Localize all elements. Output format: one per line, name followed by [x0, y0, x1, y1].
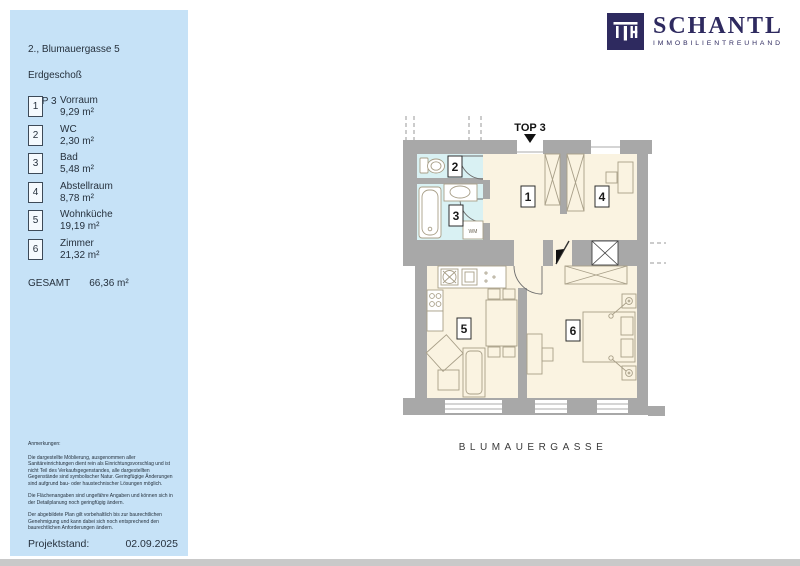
plan-label-1: 1 [525, 190, 532, 204]
wall-west-lower [415, 266, 427, 398]
room-list-item: 5 Wohnküche19,19 m² [28, 209, 178, 233]
room-name: Vorraum [60, 95, 178, 107]
plan-label-2: 2 [452, 160, 459, 174]
notes-title: Anmerkungen: [28, 441, 180, 448]
room-list-item: 3 Bad5,48 m² [28, 152, 178, 176]
address-line-1: 2., Blumauergasse 5 [28, 43, 120, 56]
logo-name: SCHANTL [653, 14, 783, 38]
room-number-box: 1 [28, 96, 43, 117]
plan-label-5: 5 [461, 322, 468, 336]
project-status-row: Projektstand: 02.09.2025 [28, 538, 178, 550]
wall-south-east-step [648, 406, 665, 416]
window-south-1 [445, 400, 502, 413]
room-name: Zimmer [60, 238, 178, 250]
ith-monogram-icon [607, 13, 644, 50]
bottom-edge-strip [0, 559, 800, 566]
info-panel: 2., Blumauergasse 5 Erdgeschoß TOP 3 1 V… [10, 10, 188, 556]
room-area: 2,30 m² [60, 136, 178, 148]
kitchen-cabinet [427, 311, 443, 331]
sink-icon [450, 186, 470, 198]
room-name: WC [60, 124, 178, 136]
room-list-item: 1 Vorraum9,29 m² [28, 95, 178, 119]
wall-east [637, 140, 648, 415]
room-name: Wohnküche [60, 209, 178, 221]
room-area: 21,32 m² [60, 250, 178, 262]
room-name: Abstellraum [60, 181, 178, 193]
room-area: 19,19 m² [60, 221, 178, 233]
washing-machine-label: WM [469, 229, 478, 235]
room-list-item: 2 WC2,30 m² [28, 124, 178, 148]
room-number-box: 4 [28, 182, 43, 203]
ith-monogram-svg [607, 13, 644, 50]
notes-block: Anmerkungen: Die dargestellte Möblierung… [28, 441, 180, 538]
wall-wohnkueche-zimmer [518, 288, 527, 398]
room-area: 9,29 m² [60, 107, 178, 119]
room-number-box: 5 [28, 210, 43, 231]
note-paragraph: Die dargestellte Möblierung, ausgenommen… [28, 455, 180, 488]
windows-south [445, 400, 628, 413]
total-value: 66,36 m² [89, 278, 128, 289]
floor-plan: WM [395, 110, 695, 470]
wall-west-upper [403, 140, 417, 242]
note-paragraph: Der abgebildete Plan gilt vorbehaltlich … [28, 512, 180, 532]
room-area: 8,78 m² [60, 193, 178, 205]
project-status-label: Projektstand: [28, 538, 89, 550]
room-area: 5,48 m² [60, 164, 178, 176]
shaft [592, 241, 618, 265]
plan-label-6: 6 [570, 324, 577, 338]
note-paragraph: Die Flächenangaben sind ungefähre Angabe… [28, 493, 180, 506]
entrance-marker: TOP 3 [514, 122, 545, 143]
toilet-icon [428, 159, 445, 173]
cooktop-icon [427, 290, 443, 311]
total-label: GESAMT [28, 278, 70, 289]
door-opening-wohnkueche [514, 240, 543, 266]
street-label: BLUMAUERGASSE [459, 442, 608, 453]
company-logo: SCHANTL IMMOBILIENTREUHAND [607, 13, 783, 50]
floorplan-page: { "sidebar": { "address_line1": "2., Blu… [0, 0, 800, 566]
wall-wc-bad [417, 178, 483, 184]
plan-label-3: 3 [453, 209, 460, 223]
project-status-date: 02.09.2025 [125, 538, 178, 550]
room-list-item: 4 Abstellraum8,78 m² [28, 181, 178, 205]
toilet-tank [420, 158, 428, 173]
room-number-box: 2 [28, 125, 43, 146]
unit-label: TOP 3 [514, 122, 545, 134]
room-name: Bad [60, 152, 178, 164]
wall-vorraum-abstellraum [560, 154, 567, 214]
room-list-item: 6 Zimmer21,32 m² [28, 238, 178, 262]
logo-subtitle: IMMOBILIENTREUHAND [653, 40, 783, 47]
window-south-3 [597, 400, 628, 413]
window-south-2 [535, 400, 567, 413]
room-number-box: 6 [28, 239, 43, 260]
address-line-2: Erdgeschoß [28, 69, 120, 82]
total-row: GESAMT 66,36 m² [28, 278, 148, 289]
logo-text: SCHANTL IMMOBILIENTREUHAND [653, 13, 783, 47]
plan-label-4: 4 [599, 190, 606, 204]
wall-bath-vorraum-a [483, 180, 490, 199]
wall-bath-vorraum-b [483, 223, 490, 242]
room-number-box: 3 [28, 153, 43, 174]
